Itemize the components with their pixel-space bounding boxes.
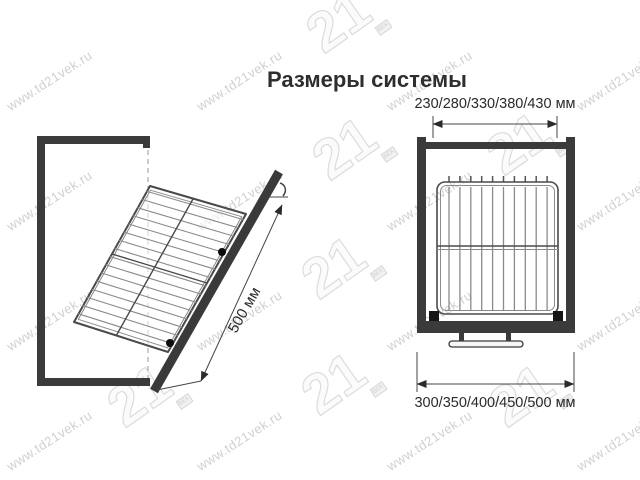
cabinet-top-endcap bbox=[143, 136, 150, 148]
basket-frame-inner bbox=[441, 186, 555, 311]
side-view-figure: 500 мм bbox=[37, 136, 288, 391]
cabinet-bottom-panel bbox=[417, 321, 575, 333]
front-view-figure: 230/280/330/380/430 мм bbox=[414, 96, 575, 411]
pedestal-base bbox=[449, 341, 523, 347]
page-title: Размеры системы bbox=[267, 67, 467, 93]
basket-foot-right bbox=[553, 311, 563, 321]
cabinet-right-wall bbox=[566, 137, 575, 333]
wire-top-ticks bbox=[449, 176, 547, 182]
cabinet-bottom-panel bbox=[37, 378, 150, 386]
cabinet-top-rail bbox=[426, 142, 566, 149]
pivot-knob-lower bbox=[166, 339, 174, 347]
dimension-width-top bbox=[433, 116, 557, 138]
dimension-label-width-bottom: 300/350/400/450/500 мм bbox=[414, 395, 575, 411]
basket-frame-outer bbox=[437, 182, 558, 314]
cabinet-back-wall bbox=[37, 136, 45, 386]
cabinet-left-wall bbox=[417, 137, 426, 333]
dimension-width-bottom bbox=[417, 352, 574, 392]
dimension-label-width-top: 230/280/330/380/430 мм bbox=[414, 96, 575, 112]
basket-wires bbox=[449, 187, 547, 310]
mount-hook bbox=[280, 183, 285, 196]
diagram-page: www.td21vek.ru www.td21vek.ru www.td21ve… bbox=[0, 0, 640, 480]
dimension-label-500: 500 мм bbox=[225, 284, 265, 336]
wire-basket-front bbox=[429, 176, 563, 321]
cabinet-top-panel bbox=[37, 136, 150, 144]
pivot-knob-upper bbox=[218, 248, 226, 256]
basket-foot-left bbox=[429, 311, 439, 321]
